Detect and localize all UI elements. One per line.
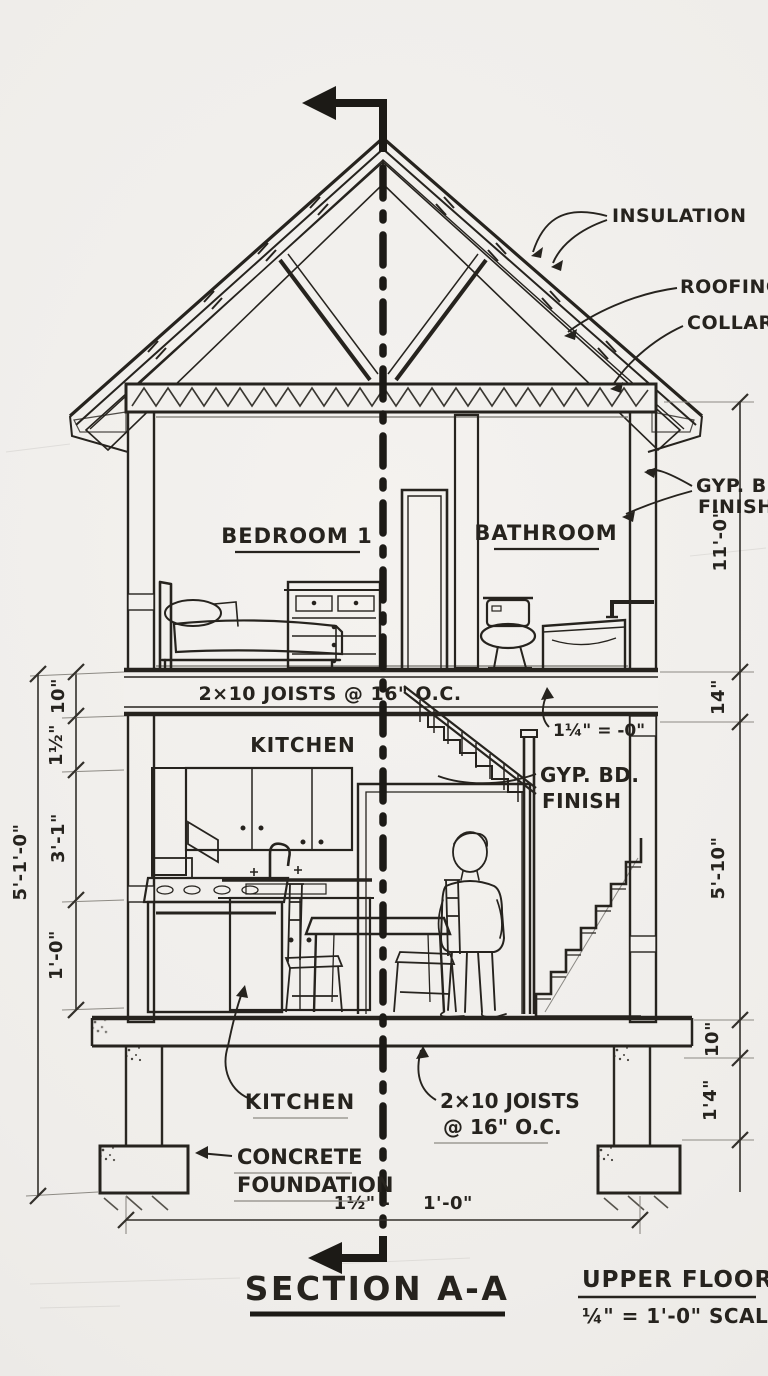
callout-foundation-2: FOUNDATION: [237, 1173, 393, 1197]
note-gyp-lower-2: FINISH: [542, 789, 621, 813]
dim-left-base: 1'-0": [46, 930, 67, 980]
left-extension-lines: [26, 672, 124, 1196]
dim-bottom-right: 1'-0": [423, 1193, 473, 1214]
room-label-kitchen: KITCHEN: [250, 733, 355, 757]
note-gyp-upper-2: FINISH: [698, 496, 768, 518]
dim-right-floor-band: 14": [708, 679, 729, 715]
dim-right-first-floor: 5'-10": [708, 837, 729, 900]
dim-left-counter: 3'-1": [48, 813, 69, 863]
scale-label: UPPER FLOOR: [582, 1267, 768, 1293]
dim-left-subfloor: 1½": [46, 724, 67, 766]
ground-slab: [92, 1018, 692, 1046]
floor-joists-note: 2×10 JOISTS @ 16" O.C.: [198, 683, 461, 705]
callout-joists-1: 2×10 JOISTS: [440, 1089, 580, 1113]
note-roofing: ROOFING: [680, 276, 768, 298]
scale-value: ¼" = 1'-0" SCALE: [582, 1304, 768, 1328]
attic-insulation-band: [126, 384, 656, 412]
section-drawing-canvas: 2×10 JOISTS @ 16" O.C.: [0, 0, 768, 1376]
note-gyp-upper-1: GYP. BD: [696, 475, 768, 497]
toilet: [481, 598, 535, 668]
dining-table-and-chairs: [286, 880, 460, 1012]
dim-right-slab: 10": [702, 1021, 723, 1057]
person-figure: [439, 832, 506, 1017]
note-collar-tie: COLLAR T: [687, 312, 768, 334]
room-label-bedroom: BEDROOM 1: [221, 524, 372, 548]
floor-joist-band: 2×10 JOISTS @ 16" O.C.: [124, 670, 658, 714]
dim-right-footing: 1'4": [700, 1079, 721, 1121]
drawing-title: SECTION A-A: [245, 1269, 510, 1308]
callout-joists-2: @ 16" O.C.: [443, 1115, 562, 1139]
dim-left-band: 10": [48, 678, 69, 714]
callout-foundation-1: CONCRETE: [237, 1145, 362, 1169]
kitchen-cabinets: [152, 768, 352, 875]
note-insulation: INSULATION: [612, 205, 747, 227]
callout-kitchen: KITCHEN: [245, 1090, 355, 1114]
section-drawing: 2×10 JOISTS @ 16" O.C.: [0, 0, 768, 1376]
note-gyp-lower-1: GYP. BD.: [540, 763, 639, 787]
room-label-bathroom: BATHROOM: [474, 521, 617, 545]
dresser: [284, 582, 384, 668]
dim-left-overall: 5'-1'-0": [10, 824, 31, 901]
note-stair: 1¼" = -0": [553, 721, 645, 741]
bathroom-door-frame: [402, 415, 478, 668]
